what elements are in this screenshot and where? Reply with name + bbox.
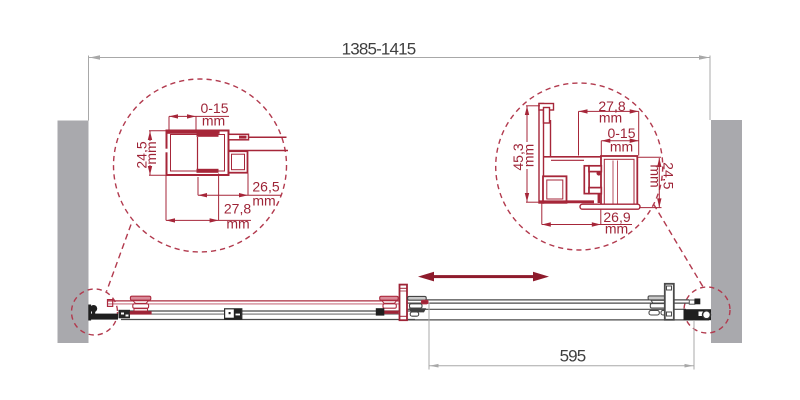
svg-text:mm: mm xyxy=(648,164,664,187)
svg-text:mm: mm xyxy=(521,144,537,167)
svg-text:1385-1415: 1385-1415 xyxy=(342,39,416,58)
svg-text:mm: mm xyxy=(605,221,628,237)
svg-text:595: 595 xyxy=(560,347,586,366)
svg-text:mm: mm xyxy=(252,192,275,208)
svg-text:mm: mm xyxy=(226,216,249,232)
svg-text:mm: mm xyxy=(599,110,622,126)
svg-text:27,8: 27,8 xyxy=(224,201,251,217)
svg-text:mm: mm xyxy=(610,139,633,155)
svg-text:mm: mm xyxy=(143,141,159,164)
svg-text:mm: mm xyxy=(202,113,225,129)
